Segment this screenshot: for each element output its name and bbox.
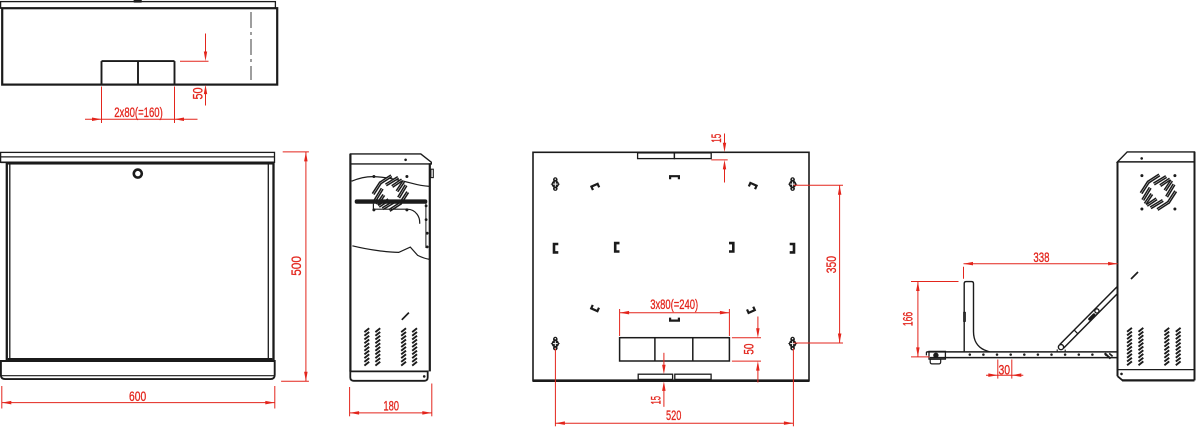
svg-text:50: 50 — [189, 87, 205, 99]
svg-text:338: 338 — [1033, 249, 1049, 265]
svg-text:350: 350 — [823, 256, 839, 273]
svg-text:520: 520 — [666, 407, 681, 423]
svg-text:15: 15 — [647, 396, 663, 405]
svg-text:30: 30 — [999, 362, 1011, 378]
svg-text:50: 50 — [741, 343, 757, 354]
svg-text:600: 600 — [129, 388, 146, 404]
svg-text:166: 166 — [900, 312, 916, 326]
svg-text:180: 180 — [383, 398, 399, 414]
svg-text:2x80(=160): 2x80(=160) — [114, 104, 163, 120]
svg-text:15: 15 — [708, 134, 724, 143]
svg-text:3x80(=240): 3x80(=240) — [650, 296, 698, 312]
svg-text:500: 500 — [288, 256, 304, 276]
